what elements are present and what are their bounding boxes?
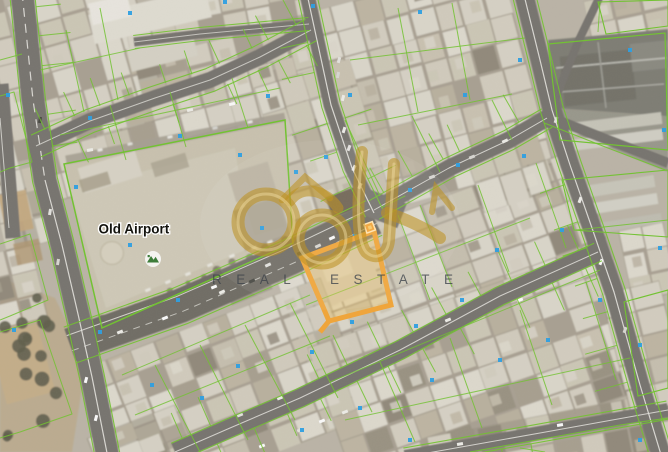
svg-text:REAL: REAL [212, 272, 305, 287]
svg-text:Old Airport: Old Airport [99, 222, 170, 237]
svg-text:ESTATE: ESTATE [330, 272, 468, 287]
